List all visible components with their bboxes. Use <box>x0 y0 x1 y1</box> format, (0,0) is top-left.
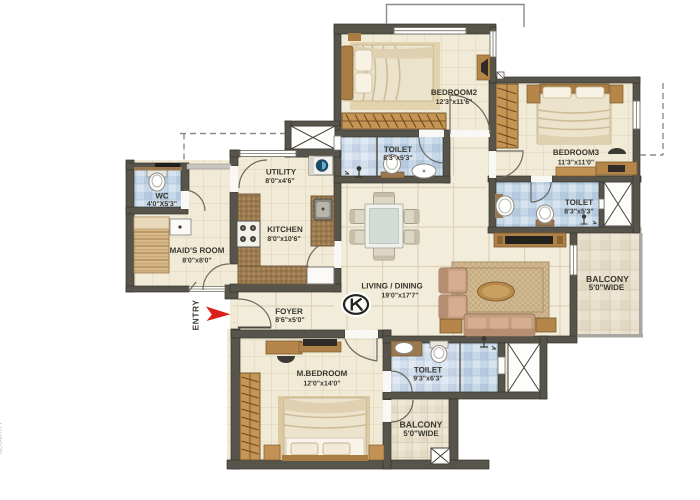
svg-text:12'3"x11'6": 12'3"x11'6" <box>436 99 473 106</box>
svg-text:8'3"x5'3": 8'3"x5'3" <box>564 209 593 216</box>
svg-text:8'0"x8'0": 8'0"x8'0" <box>182 258 211 265</box>
svg-text:4'0"X5'3": 4'0"X5'3" <box>147 201 177 208</box>
svg-text:8'0"x4'6": 8'0"x4'6" <box>265 178 294 185</box>
svg-text:5'0"WIDE: 5'0"WIDE <box>403 429 439 438</box>
svg-text:LIVING / DINING: LIVING / DINING <box>361 282 422 291</box>
svg-text:12'0"x14'0": 12'0"x14'0" <box>303 381 340 388</box>
svg-text:BEDROOM3: BEDROOM3 <box>553 148 600 157</box>
svg-text:FOYER: FOYER <box>275 307 303 316</box>
svg-text:MAID'S ROOM: MAID'S ROOM <box>170 246 225 255</box>
svg-text:11'3"x11'0": 11'3"x11'0" <box>558 160 594 167</box>
svg-text:8'6"x5'0": 8'6"x5'0" <box>275 317 304 324</box>
svg-text:TOILET: TOILET <box>414 366 442 375</box>
svg-text:SECURITY: SECURITY <box>0 421 4 455</box>
svg-text:M.BEDROOM: M.BEDROOM <box>297 369 348 378</box>
svg-text:ENTRY: ENTRY <box>190 300 200 331</box>
svg-text:8'0"x10'6": 8'0"x10'6" <box>267 236 300 243</box>
svg-text:WC: WC <box>155 192 169 201</box>
svg-text:8'3"x5'3": 8'3"x5'3" <box>383 155 412 162</box>
svg-text:BALCONY: BALCONY <box>400 420 443 430</box>
svg-text:5'0"WIDE: 5'0"WIDE <box>589 283 625 292</box>
svg-text:UTILITY: UTILITY <box>266 168 297 177</box>
svg-text:TOILET: TOILET <box>565 198 593 207</box>
svg-text:TOILET: TOILET <box>384 145 412 154</box>
svg-text:9'3"x6'3": 9'3"x6'3" <box>413 376 442 383</box>
svg-text:BEDROOM2: BEDROOM2 <box>431 88 478 97</box>
svg-text:KITCHEN: KITCHEN <box>267 225 303 234</box>
svg-text:19'0"x17'7": 19'0"x17'7" <box>381 293 418 300</box>
